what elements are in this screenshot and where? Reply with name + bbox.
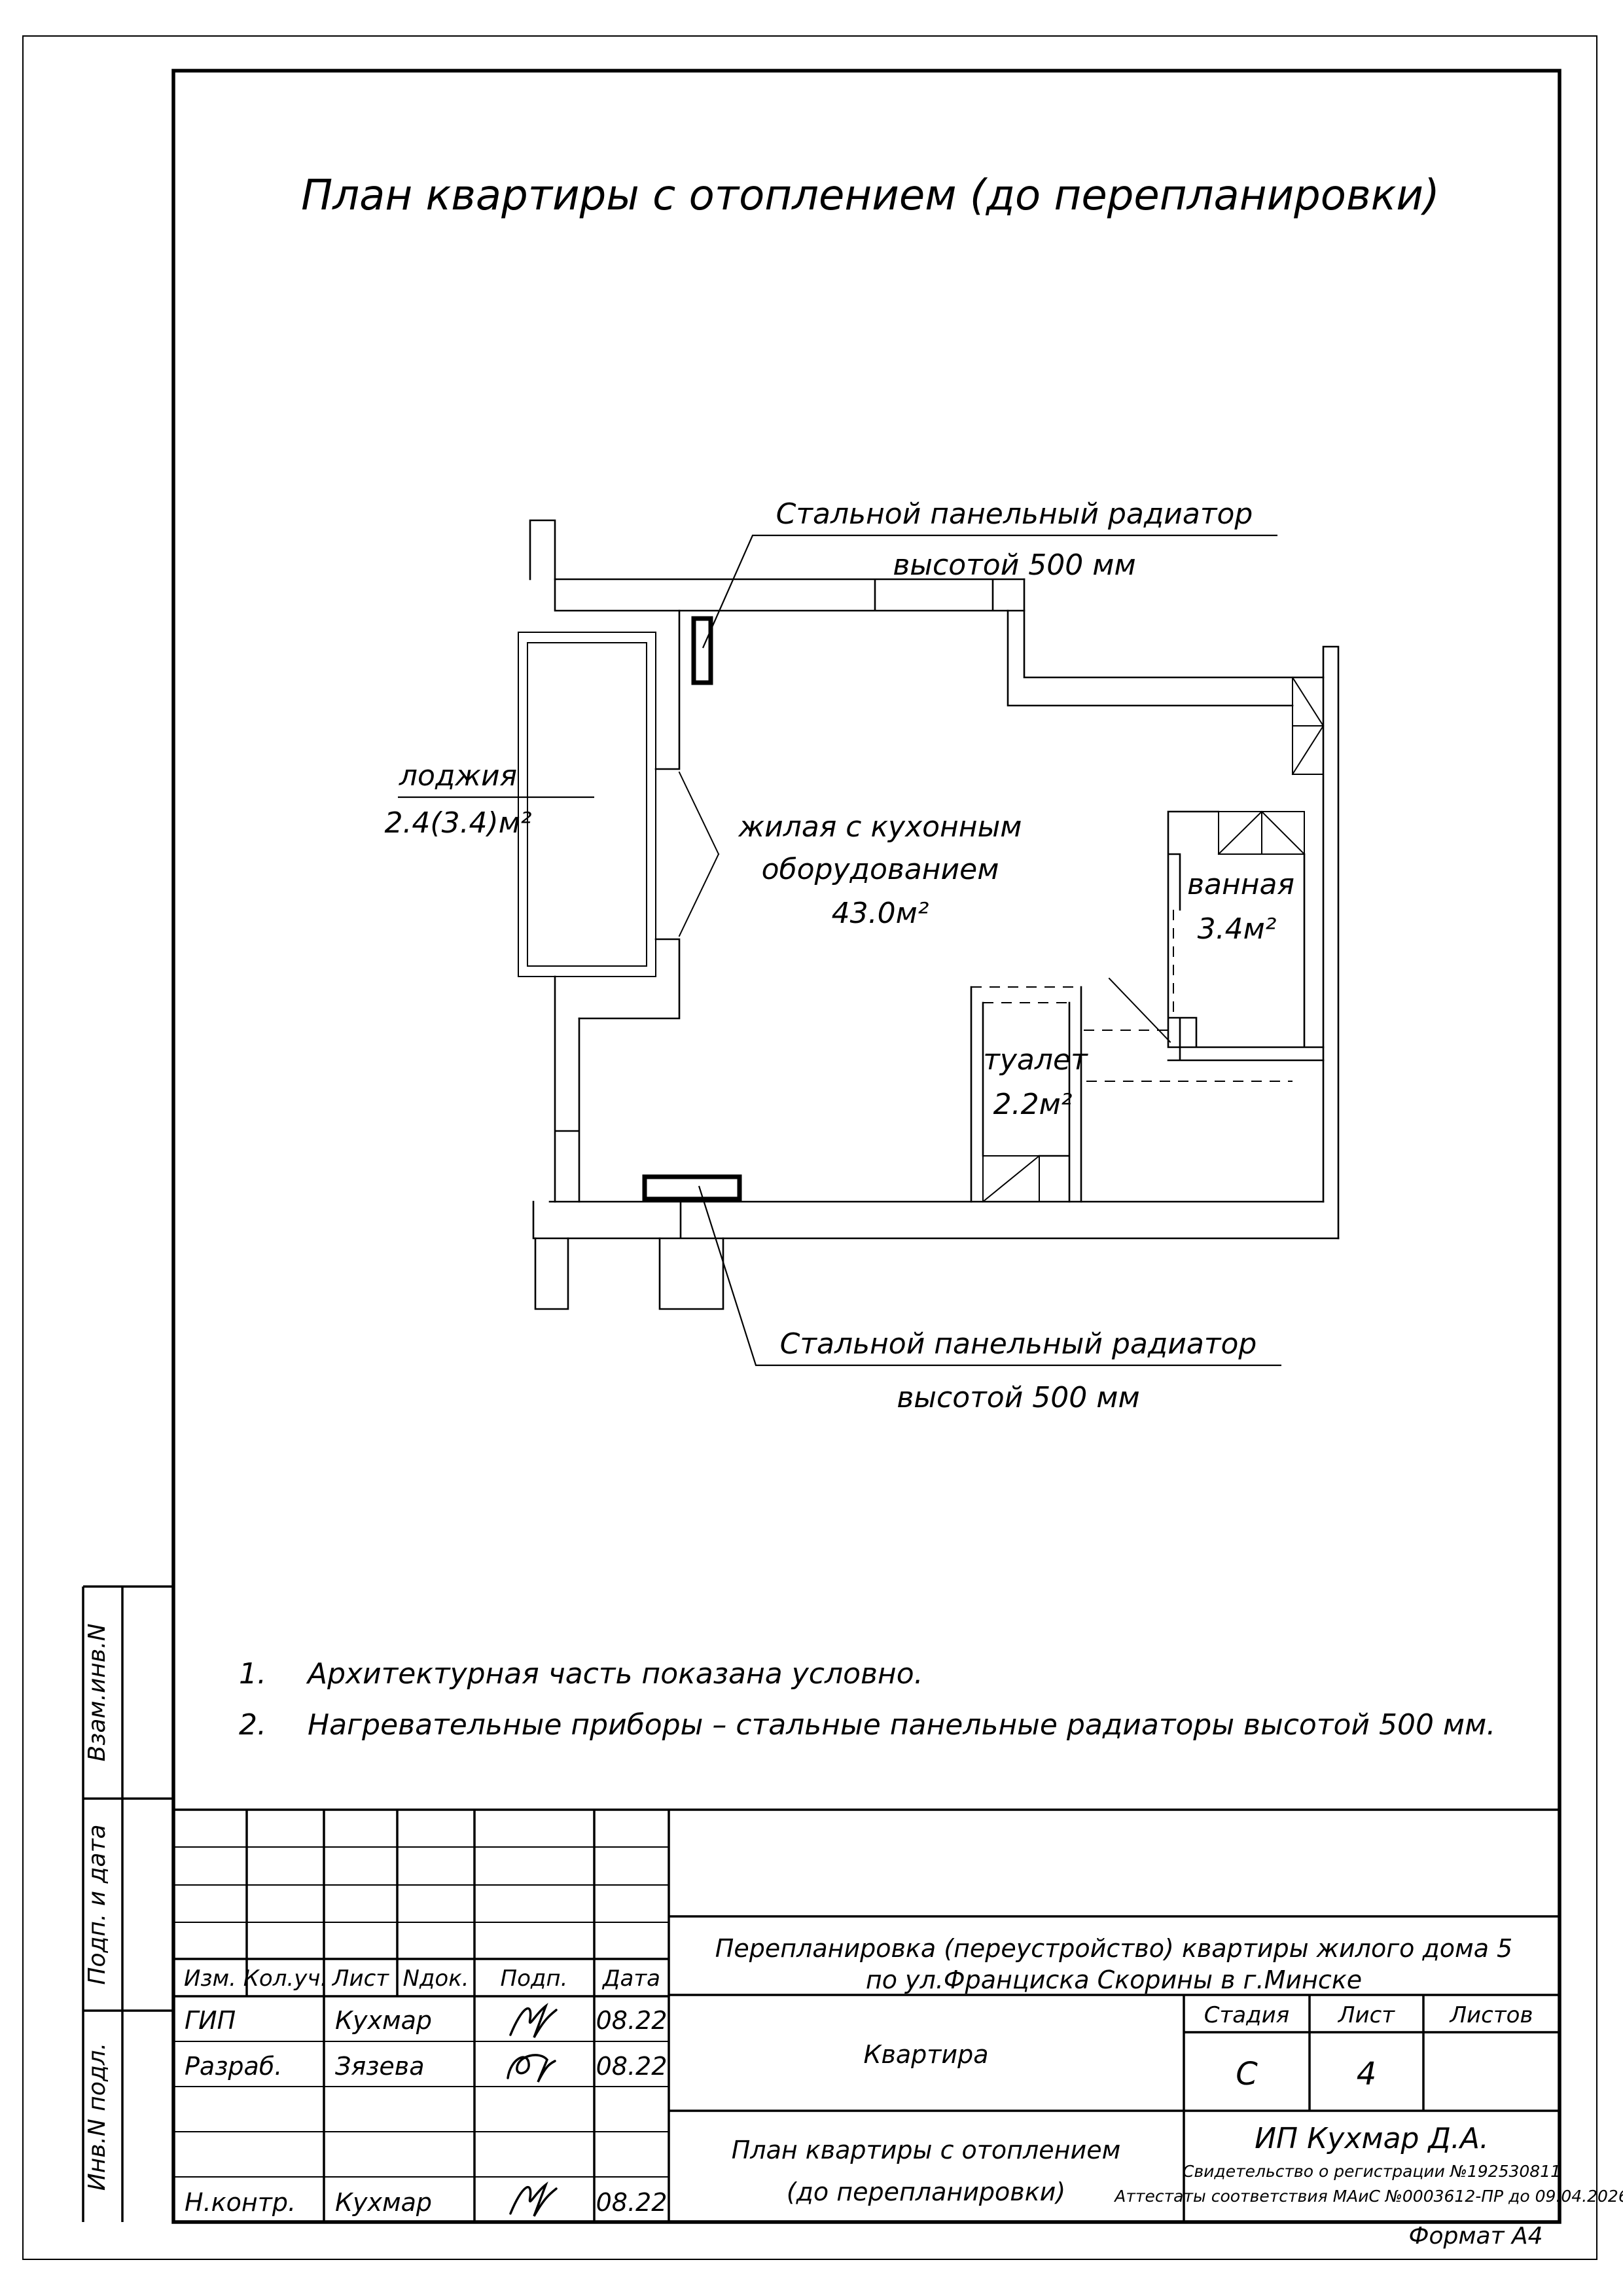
- wall-bottom: [533, 1202, 1338, 1238]
- stamp-row-date: 08.22: [596, 2188, 668, 2217]
- wall-steps-bottom-left: [535, 1238, 723, 1309]
- org-cert-1: Свидетельство о регистрации №192530811: [1183, 2162, 1561, 2181]
- title-block: Изм. Кол.уч. Лист Nдок. Подп. Дата ГИП К…: [173, 1810, 1623, 2222]
- outer-border: [23, 36, 1597, 2259]
- wall-right: [1323, 647, 1338, 1238]
- vent-shaft-toilet: [983, 1156, 1039, 1202]
- living-room-name-line2: оборудованием: [762, 853, 999, 886]
- note-2-num: 2.: [239, 1708, 266, 1742]
- floor-plan: Стальной панельный радиатор высотой 500 …: [384, 497, 1338, 1414]
- stamp-row-role: ГИП: [185, 2006, 236, 2035]
- toilet-name: туалет: [983, 1043, 1088, 1077]
- living-room-area: 43.0м²: [832, 897, 929, 930]
- signature-gip: [510, 2006, 556, 2037]
- signature-nkontr: [510, 2185, 556, 2216]
- org-name: ИП Кухмар Д.А.: [1255, 2122, 1489, 2155]
- stamp-col-izm: Изм.: [184, 1965, 236, 1992]
- sidebar-label-podp: Подп. и дата: [84, 1824, 111, 1984]
- drawing-sheet: План квартиры с отоплением (до переплани…: [0, 0, 1623, 2296]
- sheet-label: Лист: [1337, 2002, 1395, 2028]
- signature-razrab: [508, 2055, 555, 2082]
- loggia-area: 2.4(3.4)м²: [384, 806, 531, 840]
- radiator-top: [694, 619, 711, 683]
- vent-shaft-bathroom: [1219, 812, 1304, 854]
- loggia-walls: [518, 632, 656, 977]
- stamp-row-role: Разраб.: [185, 2052, 282, 2081]
- stage-label: Стадия: [1204, 2002, 1289, 2028]
- wall-loggia-room: [579, 611, 679, 1018]
- note-2-text: Нагревательные приборы – стальные панель…: [308, 1708, 1495, 1742]
- wall-top: [555, 579, 1024, 611]
- bathroom-door-swing: [1109, 978, 1170, 1042]
- stamp-col-podp: Подп.: [501, 1965, 568, 1992]
- stage-value: С: [1236, 2056, 1258, 2092]
- bathroom-area: 3.4м²: [1198, 912, 1277, 946]
- radiator-bottom-label-line1: Стальной панельный радиатор: [780, 1327, 1257, 1361]
- stamp-row-name: Зязева: [335, 2052, 425, 2081]
- radiator-top-label-line2: высотой 500 мм: [893, 548, 1135, 582]
- drawing-frame: [173, 71, 1560, 2222]
- loggia-name: лоджия: [399, 759, 517, 793]
- stamp-col-ndok: Nдок.: [402, 1965, 469, 1992]
- sheet-value: 4: [1357, 2056, 1377, 2092]
- stamp-row-name: Кухмар: [335, 2006, 432, 2035]
- sidebar-label-vzam: Взам.инв.N: [84, 1623, 111, 1761]
- notes: 1. Архитектурная часть показана условно.…: [239, 1657, 1495, 1742]
- sidebar-column: Взам.инв.N Подп. и дата Инв.N подл.: [83, 1587, 173, 2222]
- stamp-row-name: Кухмар: [335, 2188, 432, 2217]
- note-1-text: Архитектурная часть показана условно.: [306, 1657, 923, 1691]
- sheet-title-line2: (до перепланировки): [787, 2178, 1065, 2206]
- radiator-bottom: [645, 1177, 740, 1199]
- stamp-row-date: 08.22: [596, 2052, 668, 2081]
- living-room-name-line1: жилая с кухонным: [738, 810, 1022, 844]
- stamp-row-date: 08.22: [596, 2006, 668, 2035]
- object-name: Квартира: [863, 2040, 988, 2069]
- radiator-bottom-label-line2: высотой 500 мм: [897, 1381, 1139, 1414]
- sheets-label: Листов: [1448, 2002, 1533, 2028]
- toilet-area: 2.2м²: [993, 1088, 1073, 1121]
- stamp-row-role: Н.контр.: [185, 2188, 296, 2217]
- stamp-col-data: Дата: [601, 1965, 660, 1992]
- balcony-door-swing: [679, 772, 719, 936]
- wall-top-right: [1008, 579, 1323, 706]
- note-1-num: 1.: [239, 1657, 266, 1691]
- signatures: [508, 2006, 556, 2216]
- bathroom-name: ванная: [1187, 868, 1294, 901]
- project-name-line2: по ул.Франциска Скорины в г.Минске: [866, 1965, 1362, 1994]
- vent-shaft-right: [1293, 677, 1323, 774]
- wall-left-lower: [555, 977, 579, 1202]
- stamp-col-list: Лист: [331, 1965, 389, 1992]
- radiator-top-label-line1: Стальной панельный радиатор: [776, 497, 1253, 531]
- sheet-title-line1: План квартиры с отоплением: [732, 2136, 1121, 2164]
- org-cert-2: Аттестаты соответствия МАиС №0003612-ПР …: [1113, 2187, 1623, 2206]
- format-note: Формат А4: [1408, 2223, 1543, 2250]
- sidebar-label-inv: Инв.N подл.: [84, 2043, 111, 2191]
- drawing-title: План квартиры с отоплением (до переплани…: [301, 171, 1440, 220]
- wall-pier-top-left: [530, 520, 555, 579]
- stamp-col-koluch: Кол.уч.: [243, 1965, 328, 1992]
- project-name-line1: Перепланировка (переустройство) квартиры…: [715, 1934, 1513, 1963]
